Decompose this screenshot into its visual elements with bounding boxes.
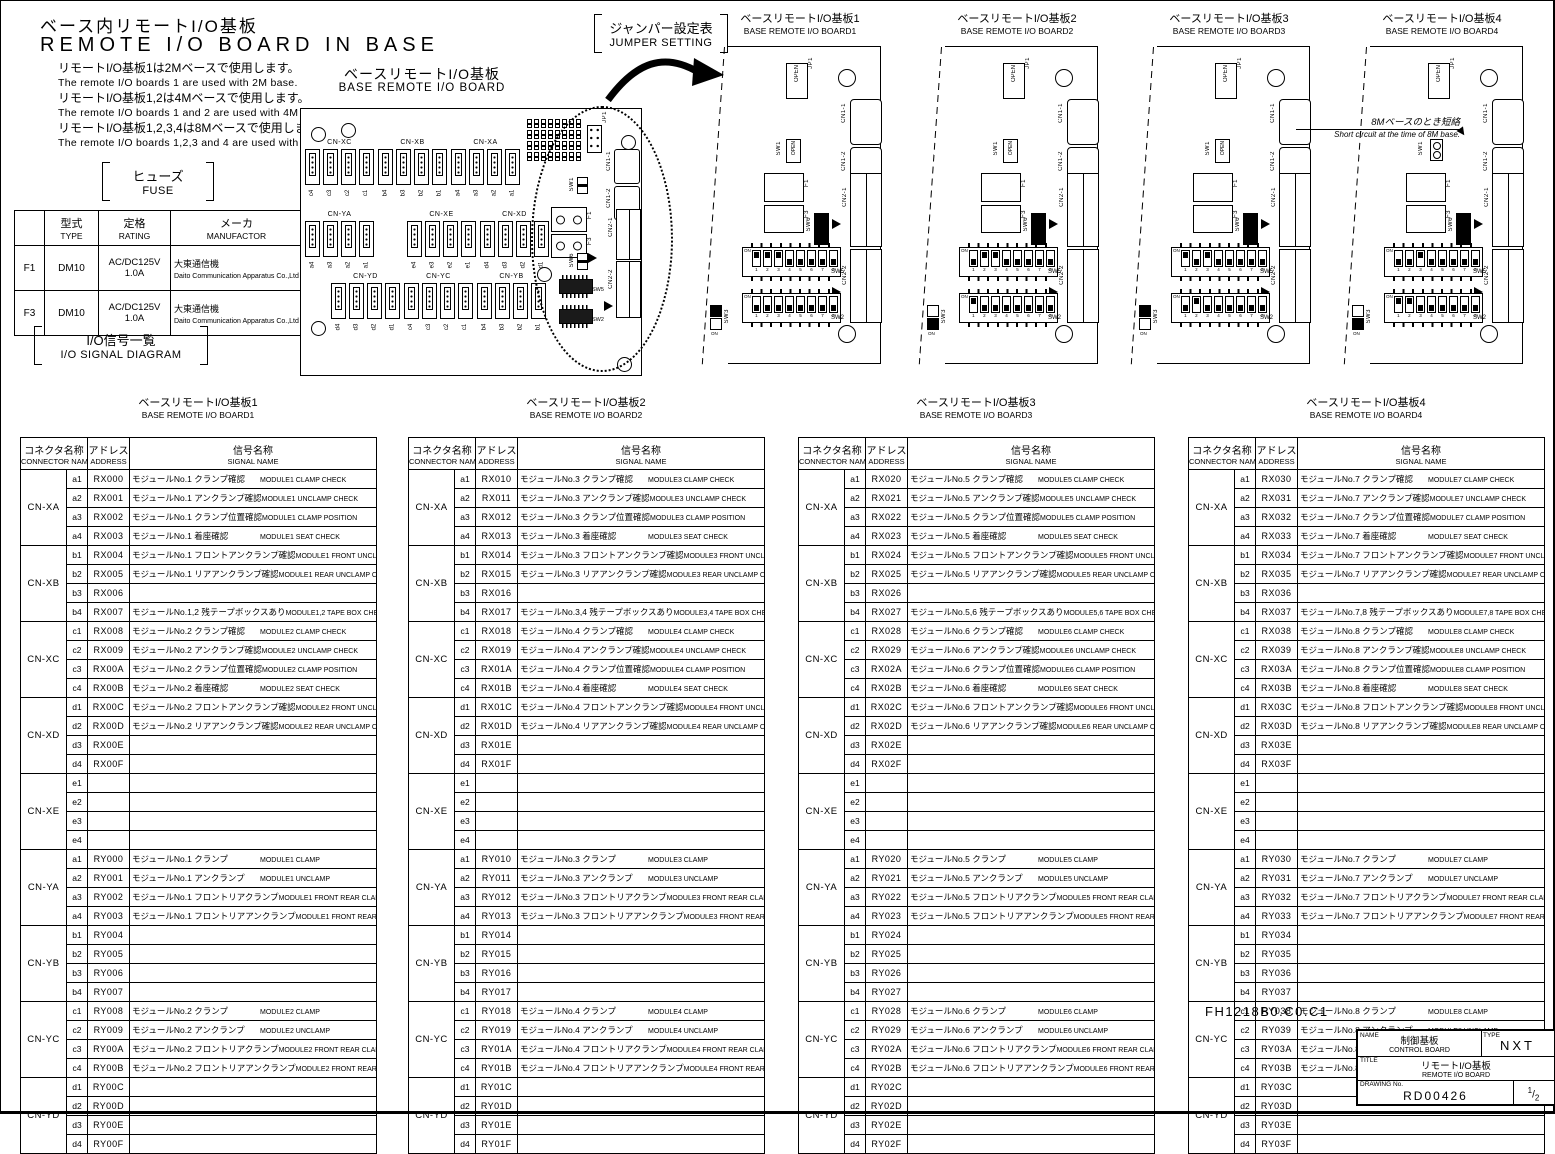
signal-name-en: MODULE3 CLAMP CHECK — [648, 477, 734, 484]
f1-label: F1 — [804, 179, 810, 187]
table-row: c4RY01BモジュールNo.4 フロントリアアンクランプMODULE4 FRO… — [409, 1059, 765, 1078]
signal-cell: モジュールNo.1 フロントリアアンクランプMODULE1 FRONT REAR… — [130, 907, 377, 926]
pin-cell: c2 — [455, 641, 476, 660]
jumper-pad — [548, 130, 553, 139]
signal-cell: モジュールNo.3 フロントリアクランプMODULE3 FRONT REAR C… — [518, 888, 765, 907]
signal-cell — [908, 755, 1155, 774]
pin-cell: d3 — [67, 1116, 88, 1135]
mounting-hole — [617, 357, 632, 372]
signal-name-jp: モジュールNo.3,4 残テープボックスあり — [520, 606, 674, 618]
format-code: FH1218B0.C0.C1 — [1205, 1004, 1329, 1019]
pin-cell: d1 — [455, 698, 476, 717]
signal-table: コネクタ名称CONNECTOR NAMEアドレスADDRESS信号名称SIGNA… — [408, 437, 765, 1154]
pin-cell: c2 — [845, 641, 866, 660]
address-cell: RY03A — [1256, 1040, 1298, 1059]
table-row: CN-XDd1RX01CモジュールNo.4 フロントアンクランプ確認MODULE… — [409, 698, 765, 717]
sw3-switch — [1352, 305, 1364, 331]
address-cell: RX03B — [1256, 679, 1298, 698]
signal-cell: モジュールNo.3 アンクランプMODULE3 UNCLAMP — [518, 869, 765, 888]
pin-cell: a4 — [67, 907, 88, 926]
page-fraction: 1/2 — [1528, 1086, 1540, 1102]
address-cell: RY007 — [88, 983, 130, 1002]
pin-label: b2 — [517, 324, 523, 331]
address-cell: RX026 — [866, 584, 908, 603]
connector-cn-xd-d4: d4 — [480, 221, 495, 257]
pin-cell: c2 — [455, 1021, 476, 1040]
dip-position — [1460, 296, 1469, 313]
pin-cell: b1 — [455, 926, 476, 945]
dip-position — [1035, 250, 1044, 267]
dip-numbers: 12345678 — [1394, 267, 1480, 272]
connector-group-cn-yb: CN-YBb4b3b2b1 — [477, 273, 546, 319]
signal-cell: モジュールNo.1 着座確認MODULE1 SEAT CHECK — [130, 527, 377, 546]
table-row: a3RY012モジュールNo.3 フロントリアクランプMODULE3 FRONT… — [409, 888, 765, 907]
address-cell: RX01F — [476, 755, 518, 774]
address-cell: RY025 — [866, 945, 908, 964]
address-cell: RY03D — [1256, 1097, 1298, 1116]
address-cell: RX014 — [476, 546, 518, 565]
signal-cell — [518, 1116, 765, 1135]
table-row: a3RX012モジュールNo.3 クランプ位置確認MODULE3 CLAMP P… — [409, 508, 765, 527]
type-value: NXT — [1481, 1038, 1554, 1053]
signal-cell — [130, 983, 377, 1002]
pin-cell: e1 — [67, 774, 88, 793]
jumper-pad — [534, 119, 539, 128]
name-label: NAME — [1360, 1032, 1379, 1039]
connector-row-middle: CN-YAa4a3a2a1CN-XEe4e3e2e1CN-XDd4d3d2d1 — [305, 211, 549, 257]
dip-position — [1427, 250, 1436, 267]
on-label: ON — [1386, 294, 1393, 299]
table-row: CN-XBb1RX014モジュールNo.3 フロントアンクランプ確認MODULE… — [409, 546, 765, 565]
signal-name-jp: モジュールNo.5 リアアンクランプ確認 — [910, 568, 1057, 580]
signal-name-jp: モジュールNo.8 アンクランプ確認 — [1300, 644, 1430, 656]
table-row: d3RY01E — [409, 1116, 765, 1135]
fuse-table-corner — [15, 211, 45, 246]
address-cell: RX029 — [866, 641, 908, 660]
jumper-pad — [569, 152, 574, 161]
address-cell: RY000 — [88, 850, 130, 869]
jp1-jumper: OPEN — [1428, 63, 1450, 99]
table-title-jp: ベースリモートI/O基板3 — [798, 394, 1154, 410]
pin-cell: c3 — [845, 1040, 866, 1059]
address-cell: RY027 — [866, 983, 908, 1002]
address-cell: RY03E — [1256, 1116, 1298, 1135]
signal-name-jp: モジュールNo.2 クランプ確認 — [132, 625, 260, 637]
pin-cell: e1 — [455, 774, 476, 793]
signal-cell — [908, 812, 1155, 831]
connector-cn-xa-a3: a3 — [469, 149, 484, 185]
signal-name-jp: モジュールNo.7,8 残テープボックスあり — [1300, 606, 1454, 618]
jumper-pad — [569, 141, 574, 150]
table-row: a4RX003モジュールNo.1 着座確認MODULE1 SEAT CHECK — [21, 527, 377, 546]
connector-cn2-1 — [616, 209, 641, 260]
address-cell: RY013 — [476, 907, 518, 926]
pin-cell: b1 — [67, 926, 88, 945]
pin-label: b1 — [535, 324, 541, 331]
drawing-title-en: REMOTE I/O BOARD — [1358, 1072, 1554, 1079]
signal-cell: モジュールNo.5,6 残テープボックスありMODULE5,6 TAPE BOX… — [908, 603, 1155, 622]
table-title-en: BASE REMOTE I/O BOARD3 — [798, 410, 1154, 420]
table-row: CN-YBb1RY014 — [409, 926, 765, 945]
sw3-label: SW3 — [1153, 309, 1159, 324]
address-cell: RX008 — [88, 622, 130, 641]
connector-group-label: CN-XD — [480, 211, 549, 221]
pin-cell: a4 — [455, 907, 476, 926]
table-row: d4RY00F — [21, 1135, 377, 1154]
connector-cell-cn-ya: CN-YA — [1189, 850, 1235, 926]
signal-name-en: MODULE2 CLAMP CHECK — [260, 629, 346, 636]
dip-position — [1013, 296, 1022, 313]
signal-name-en: MODULE3 UNCLAMP — [648, 876, 718, 883]
signal-name-jp: モジュールNo.5,6 残テープボックスあり — [910, 606, 1064, 618]
signal-name-jp: モジュールNo.7 アンクランプ確認 — [1300, 492, 1430, 504]
dip-position — [763, 296, 772, 313]
dip-position — [1214, 250, 1223, 267]
address-cell: RY032 — [1256, 888, 1298, 907]
jp1-label: JP1 — [1450, 57, 1456, 69]
signal-name-en: MODULE4 FRONT REAR CLAMP — [667, 1047, 765, 1054]
signal-cell — [1298, 926, 1545, 945]
signal-cell — [1298, 831, 1545, 850]
table-row: c2RY009モジュールNo.2 アンクランプMODULE2 UNCLAMP — [21, 1021, 377, 1040]
table-row: b4RX027モジュールNo.5,6 残テープボックスありMODULE5,6 T… — [799, 603, 1155, 622]
pin-cell: d2 — [67, 1097, 88, 1116]
page-cell: 1/2 — [1513, 1080, 1554, 1104]
jumper-board-1: ベースリモートI/O基板1BASE REMOTE I/O BOARD1OPENJ… — [696, 10, 904, 382]
pin-cell: a3 — [455, 888, 476, 907]
signal-cell: モジュールNo.6 クランプ位置確認MODULE6 CLAMP POSITION — [908, 660, 1155, 679]
pin-cell: c1 — [1235, 622, 1256, 641]
pin-cell: d4 — [67, 1135, 88, 1154]
address-cell: RY00B — [88, 1059, 130, 1078]
sw1-jumper — [577, 177, 588, 194]
jumper-board-title-en: BASE REMOTE I/O BOARD4 — [1338, 26, 1546, 36]
mounting-hole — [1267, 325, 1285, 343]
signal-name-en: MODULE8 REAR UNCLAMP CHECK — [1447, 724, 1545, 731]
address-cell: RX020 — [866, 470, 908, 489]
sw1-label: SW1 — [993, 141, 999, 156]
signal-cell — [518, 831, 765, 850]
dip-position — [1181, 296, 1190, 313]
dip-position — [1247, 250, 1256, 267]
pin-cell: d1 — [1235, 1078, 1256, 1097]
address-cell: RX02F — [866, 755, 908, 774]
mounting-hole — [341, 123, 356, 138]
pin-cell: a1 — [845, 470, 866, 489]
jumper-pad — [548, 141, 553, 150]
connector-cell-cn-xe: CN-XE — [1189, 774, 1235, 850]
signal-cell: モジュールNo.3 クランプ確認MODULE3 CLAMP CHECK — [518, 470, 765, 489]
connector-cn-yb-b3: b3 — [495, 283, 510, 319]
connector-cell-cn-xd: CN-XD — [21, 698, 67, 774]
cn1-1-label: CN1-1 — [1058, 103, 1064, 123]
signal-name-en: MODULE1 CLAMP POSITION — [262, 515, 357, 522]
type-cell: TYPE NXT — [1481, 1031, 1554, 1056]
address-cell: RX02A — [866, 660, 908, 679]
signal-cell: モジュールNo.8 リアアンクランプ確認MODULE8 REAR UNCLAMP… — [1298, 717, 1545, 736]
fuse-f3 — [1193, 205, 1233, 233]
dip-position — [785, 296, 794, 313]
address-cell: RY03C — [1256, 1078, 1298, 1097]
signal-name-en: MODULE4 FRONT UNCLAMP CHECK — [684, 705, 765, 712]
connector-cn-yc-c2: c2 — [440, 283, 455, 319]
table-row: b4RX007モジュールNo.1,2 残テープボックスありMODULE1,2 T… — [21, 603, 377, 622]
cn1-2-label: CN1-2 — [1058, 151, 1064, 171]
sw6-label: SW6 — [569, 253, 575, 268]
dip-position — [829, 296, 838, 313]
sw5-label: SW5 — [592, 287, 604, 293]
address-cell: RX038 — [1256, 622, 1298, 641]
sw6-block — [1456, 213, 1471, 245]
connector-cell-cn-xd: CN-XD — [409, 698, 455, 774]
connector-cell-cn-xa: CN-XA — [799, 470, 845, 546]
address-cell — [88, 812, 130, 831]
dip-position — [807, 250, 816, 267]
signal-cell — [1298, 983, 1545, 1002]
address-cell — [866, 774, 908, 793]
pin-cell: a4 — [845, 907, 866, 926]
address-cell — [866, 793, 908, 812]
address-cell: RY036 — [1256, 964, 1298, 983]
table-row: a4RY003モジュールNo.1 フロントリアアンクランプMODULE1 FRO… — [21, 907, 377, 926]
table-row: d3RY03E — [1189, 1116, 1545, 1135]
pin-label: b4 — [382, 190, 388, 197]
jumper-board-2: ベースリモートI/O基板2BASE REMOTE I/O BOARD2OPENJ… — [913, 10, 1121, 382]
table-row: d2RY02D — [799, 1097, 1155, 1116]
signal-name-jp: モジュールNo.3 アンクランプ確認 — [520, 492, 650, 504]
signal-name-jp: モジュールNo.2 フロントアンクランプ確認 — [132, 701, 296, 713]
address-cell: RY01A — [476, 1040, 518, 1059]
signal-name-en: MODULE3 UNCLAMP CHECK — [650, 496, 746, 503]
fuse-row-f1: F1 DM10 AC/DC125V 1.0A 大東通信機 Daito Commu… — [15, 246, 303, 291]
type-label: TYPE — [1483, 1032, 1500, 1039]
connector-name-header: コネクタ名称CONNECTOR NAME — [799, 438, 866, 470]
dip-position — [1002, 296, 1011, 313]
signal-cell — [518, 1097, 765, 1116]
address-cell: RY026 — [866, 964, 908, 983]
pin-cell: a1 — [455, 470, 476, 489]
signal-name-jp: モジュールNo.8 着座確認 — [1300, 682, 1428, 694]
signal-name-en: MODULE2 FRONT UNCLAMP CHECK — [296, 705, 377, 712]
pin-cell: e3 — [1235, 812, 1256, 831]
signal-name-en: MODULE6 UNCLAMP CHECK — [1040, 648, 1136, 655]
pin-cell: b2 — [455, 565, 476, 584]
connector-cn-xa-a2: a2 — [487, 149, 502, 185]
dip-position — [1258, 296, 1267, 313]
pin-label: a2 — [491, 190, 497, 197]
dip-position — [1405, 296, 1414, 313]
signal-name-en: MODULE1 FRONT UNCLAMP CHECK — [296, 553, 377, 560]
fuse-col-type: 型式 TYPE — [45, 211, 99, 246]
pin-cell: c4 — [67, 679, 88, 698]
cn1-1-label: CN1-1 — [841, 103, 847, 123]
connector-cn2-1 — [850, 173, 882, 247]
pin-label: c1 — [462, 324, 468, 330]
address-cell: RY029 — [866, 1021, 908, 1040]
signal-cell — [1298, 584, 1545, 603]
pin-cell: c2 — [67, 1021, 88, 1040]
signal-cell — [908, 1135, 1155, 1154]
pin-cell: d3 — [67, 736, 88, 755]
signal-name-jp: モジュールNo.7 クランプ — [1300, 853, 1428, 865]
address-cell: RX01B — [476, 679, 518, 698]
connector-cn-ya-a1: a1 — [359, 221, 374, 257]
pin-label: b3 — [499, 324, 505, 331]
mounting-hole — [1055, 69, 1073, 87]
signal-cell: モジュールNo.5 フロントアンクランプ確認MODULE5 FRONT UNCL… — [908, 546, 1155, 565]
signal-cell: モジュールNo.2 リアアンクランプ確認MODULE2 REAR UNCLAMP… — [130, 717, 377, 736]
signal-cell: モジュールNo.2 フロントリアクランプMODULE2 FRONT REAR C… — [130, 1040, 377, 1059]
pin-cell: b1 — [1235, 546, 1256, 565]
sw5-label: SW5 — [1048, 269, 1061, 275]
address-cell — [476, 812, 518, 831]
pin-cell: a4 — [845, 527, 866, 546]
table-row: b4RY017 — [409, 983, 765, 1002]
fuse-f1 — [764, 173, 804, 202]
signal-name-header: 信号名称SIGNAL NAME — [1298, 438, 1545, 470]
table-row: d2RY01D — [409, 1097, 765, 1116]
jumper-pad — [576, 130, 581, 139]
pin-cell: a1 — [67, 470, 88, 489]
mounting-hole — [621, 135, 636, 150]
connector-cn-xe-e3: e3 — [425, 221, 440, 257]
signal-cell: モジュールNo.4 アンクランプ確認MODULE4 UNCLAMP CHECK — [518, 641, 765, 660]
signal-name-en: MODULE5 UNCLAMP — [1038, 876, 1108, 883]
pin-cell: a3 — [455, 508, 476, 527]
pointer-triangle — [588, 253, 597, 263]
sw3-label: SW3 — [724, 309, 730, 324]
address-cell — [88, 793, 130, 812]
signal-name-jp: モジュールNo.2 フロントリアクランプ — [132, 1043, 279, 1055]
dip-position — [774, 296, 783, 313]
signal-name-jp: モジュールNo.1 着座確認 — [132, 530, 260, 542]
pin-cell: e4 — [845, 831, 866, 850]
table-row: CN-YBb1RY024 — [799, 926, 1155, 945]
dip-position — [969, 296, 978, 313]
connector-cell-cn-xa: CN-XA — [1189, 470, 1235, 546]
connector-pins: d4d3d2d1 — [331, 283, 400, 319]
signal-cell: モジュールNo.1 アンクランプ確認MODULE1 UNCLAMP CHECK — [130, 489, 377, 508]
signal-name-en: MODULE3,4 TAPE BOX CHECK — [674, 610, 765, 617]
connector-cn-yd-d4: d4 — [331, 283, 346, 319]
connector-cn2-2 — [1492, 249, 1524, 323]
signal-name-jp: モジュールNo.1 フロントアンクランプ確認 — [132, 549, 296, 561]
signal-cell — [130, 755, 377, 774]
pin-label: c3 — [327, 190, 333, 196]
jp1-jumper: OPEN — [1215, 63, 1237, 99]
address-cell: RX03C — [1256, 698, 1298, 717]
short-circuit-note-en: Short circuit at the time of 8M base. — [1296, 130, 1460, 139]
cn1-2-label: CN1-2 — [841, 151, 847, 171]
signal-name-jp: モジュールNo.4 アンクランプ — [520, 1024, 648, 1036]
address-cell: RX01E — [476, 736, 518, 755]
connector-pins: c4c3c2c1 — [305, 149, 374, 185]
fuse-col-rating: 定格 RATING — [99, 211, 171, 246]
connector-pins: a4a3a2a1 — [305, 221, 374, 257]
dip-numbers: 12345678 — [1181, 267, 1267, 272]
connector-pins: d4d3d2d1 — [480, 221, 549, 257]
signal-name-en: MODULE8 FRONT UNCLAMP CHECK — [1464, 705, 1545, 712]
connector-name-header: コネクタ名称CONNECTOR NAME — [1189, 438, 1256, 470]
cn2-1-label: CN2-1 — [1271, 187, 1277, 207]
connector-cell-cn-yb: CN-YB — [799, 926, 845, 1002]
signal-name-en: MODULE2 UNCLAMP — [260, 1028, 330, 1035]
address-cell: RY01B — [476, 1059, 518, 1078]
table-row: b2RY015 — [409, 945, 765, 964]
signal-name-en: MODULE2 CLAMP POSITION — [262, 667, 357, 674]
table-row: a4RY023モジュールNo.5 フロントリアアンクランプMODULE5 FRO… — [799, 907, 1155, 926]
signal-name-jp: モジュールNo.1 リアアンクランプ確認 — [132, 568, 279, 580]
pin-cell: b3 — [845, 584, 866, 603]
table-row: d2RX02DモジュールNo.6 リアアンクランプ確認MODULE6 REAR … — [799, 717, 1155, 736]
signal-cell — [1298, 812, 1545, 831]
signal-cell: モジュールNo.6 クランプMODULE6 CLAMP — [908, 1002, 1155, 1021]
pin-cell: b4 — [67, 603, 88, 622]
on-label: ON — [744, 294, 751, 299]
sw1-jumper: OPEN — [786, 139, 801, 163]
signal-name-jp: モジュールNo.3 アンクランプ — [520, 872, 648, 884]
table-row: c3RX00AモジュールNo.2 クランプ位置確認MODULE2 CLAMP P… — [21, 660, 377, 679]
pin-cell: d4 — [455, 1135, 476, 1154]
address-cell: RY02E — [866, 1116, 908, 1135]
connector-cn1-1 — [1067, 99, 1099, 145]
signal-name-jp: モジュールNo.2 フロントリアアンクランプ — [132, 1062, 296, 1074]
signal-name-en: MODULE2 UNCLAMP CHECK — [262, 648, 358, 655]
jumper-pad — [541, 130, 546, 139]
mounting-hole — [311, 321, 326, 336]
signal-name-jp: モジュールNo.6 フロントリアクランプ — [910, 1043, 1057, 1055]
address-cell: RY024 — [866, 926, 908, 945]
jumper-pad — [548, 152, 553, 161]
connector-cn2-2 — [616, 261, 641, 318]
signal-cell — [130, 774, 377, 793]
connector-cn-xa-a1: a1 — [505, 149, 520, 185]
address-cell: RY003 — [88, 907, 130, 926]
pin-cell: d2 — [1235, 717, 1256, 736]
pin-cell: c4 — [1235, 1059, 1256, 1078]
address-cell: RX025 — [866, 565, 908, 584]
pin-cell: d3 — [845, 736, 866, 755]
signal-name-header: 信号名称SIGNAL NAME — [908, 438, 1155, 470]
table-row: d3RX02E — [799, 736, 1155, 755]
jumper-board-title-en: BASE REMOTE I/O BOARD1 — [696, 26, 904, 36]
signal-cell: モジュールNo.1 フロントアンクランプ確認MODULE1 FRONT UNCL… — [130, 546, 377, 565]
pin-cell: b3 — [67, 584, 88, 603]
address-cell: RY00C — [88, 1078, 130, 1097]
pin-cell: c3 — [1235, 660, 1256, 679]
fuse-rating: AC/DC125V 1.0A — [99, 246, 171, 291]
address-cell: RX00B — [88, 679, 130, 698]
signal-name-jp: モジュールNo.2 クランプ — [132, 1005, 260, 1017]
pin-label: a3 — [473, 190, 479, 197]
address-cell: RX03A — [1256, 660, 1298, 679]
fuse-maker: 大東通信機 Daito Communication Apparatus Co.,… — [171, 291, 303, 336]
signal-name-en: MODULE4 UNCLAMP CHECK — [650, 648, 746, 655]
cn1-2-label: CN1-2 — [1270, 151, 1276, 171]
connector-cn-xc-c1: c1 — [359, 149, 374, 185]
signal-name-jp: モジュールNo.6 アンクランプ確認 — [910, 644, 1040, 656]
cn2-1-label: CN2-1 — [608, 217, 614, 237]
fuse-f3 — [981, 205, 1021, 233]
pin-cell: c4 — [67, 1059, 88, 1078]
pin-cell: e4 — [455, 831, 476, 850]
sw3-on-label: ON — [1353, 331, 1360, 336]
table-row: a2RY021モジュールNo.5 アンクランプMODULE5 UNCLAMP — [799, 869, 1155, 888]
pin-cell: a2 — [845, 869, 866, 888]
table-row: CN-XDd1RX00CモジュールNo.2 フロントアンクランプ確認MODULE… — [21, 698, 377, 717]
table-row: c3RX01AモジュールNo.4 クランプ位置確認MODULE4 CLAMP P… — [409, 660, 765, 679]
table-row: e4 — [1189, 831, 1545, 850]
